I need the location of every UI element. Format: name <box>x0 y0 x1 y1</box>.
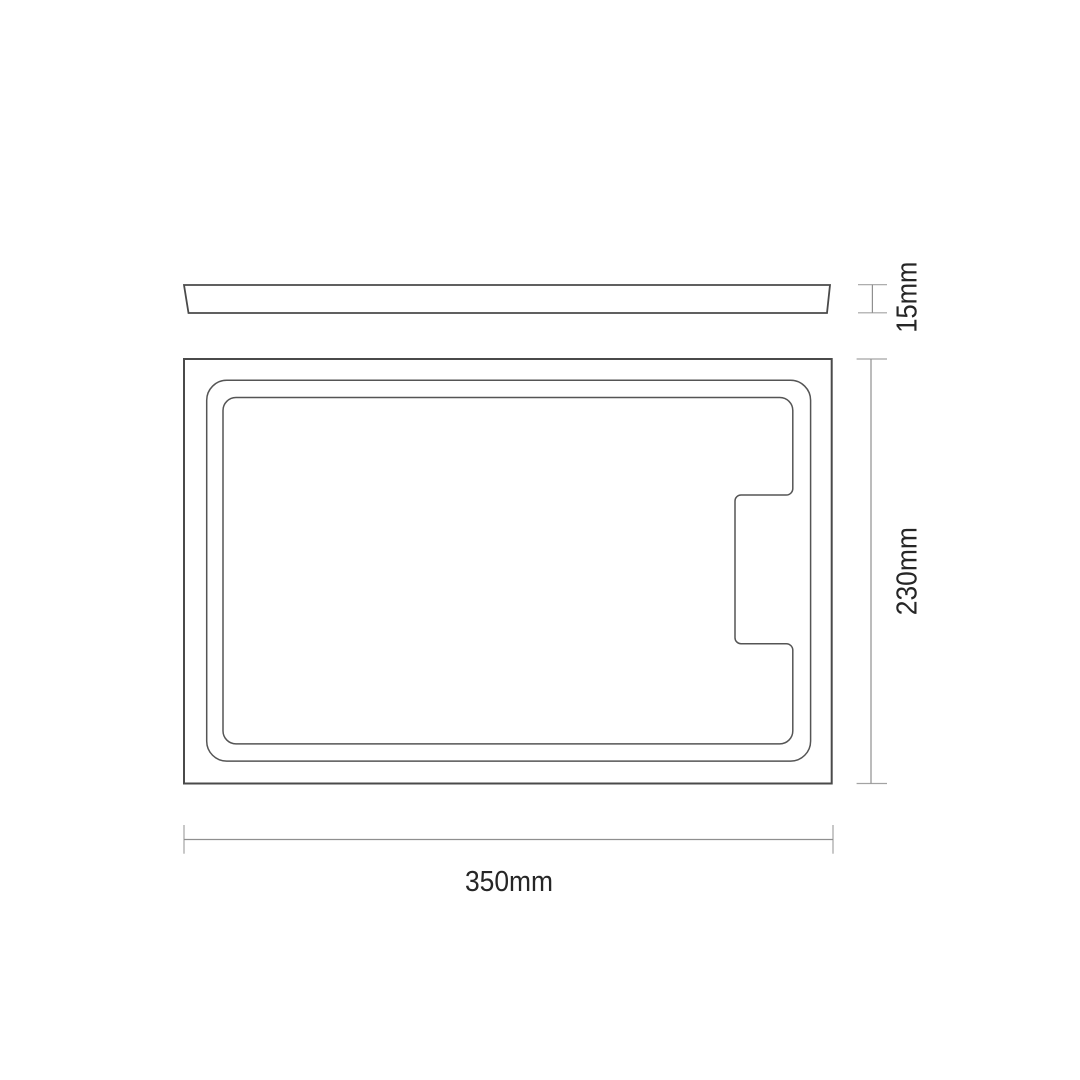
svg-text:15mm: 15mm <box>891 262 923 333</box>
svg-text:350mm: 350mm <box>465 866 553 898</box>
svg-text:230mm: 230mm <box>892 527 924 615</box>
